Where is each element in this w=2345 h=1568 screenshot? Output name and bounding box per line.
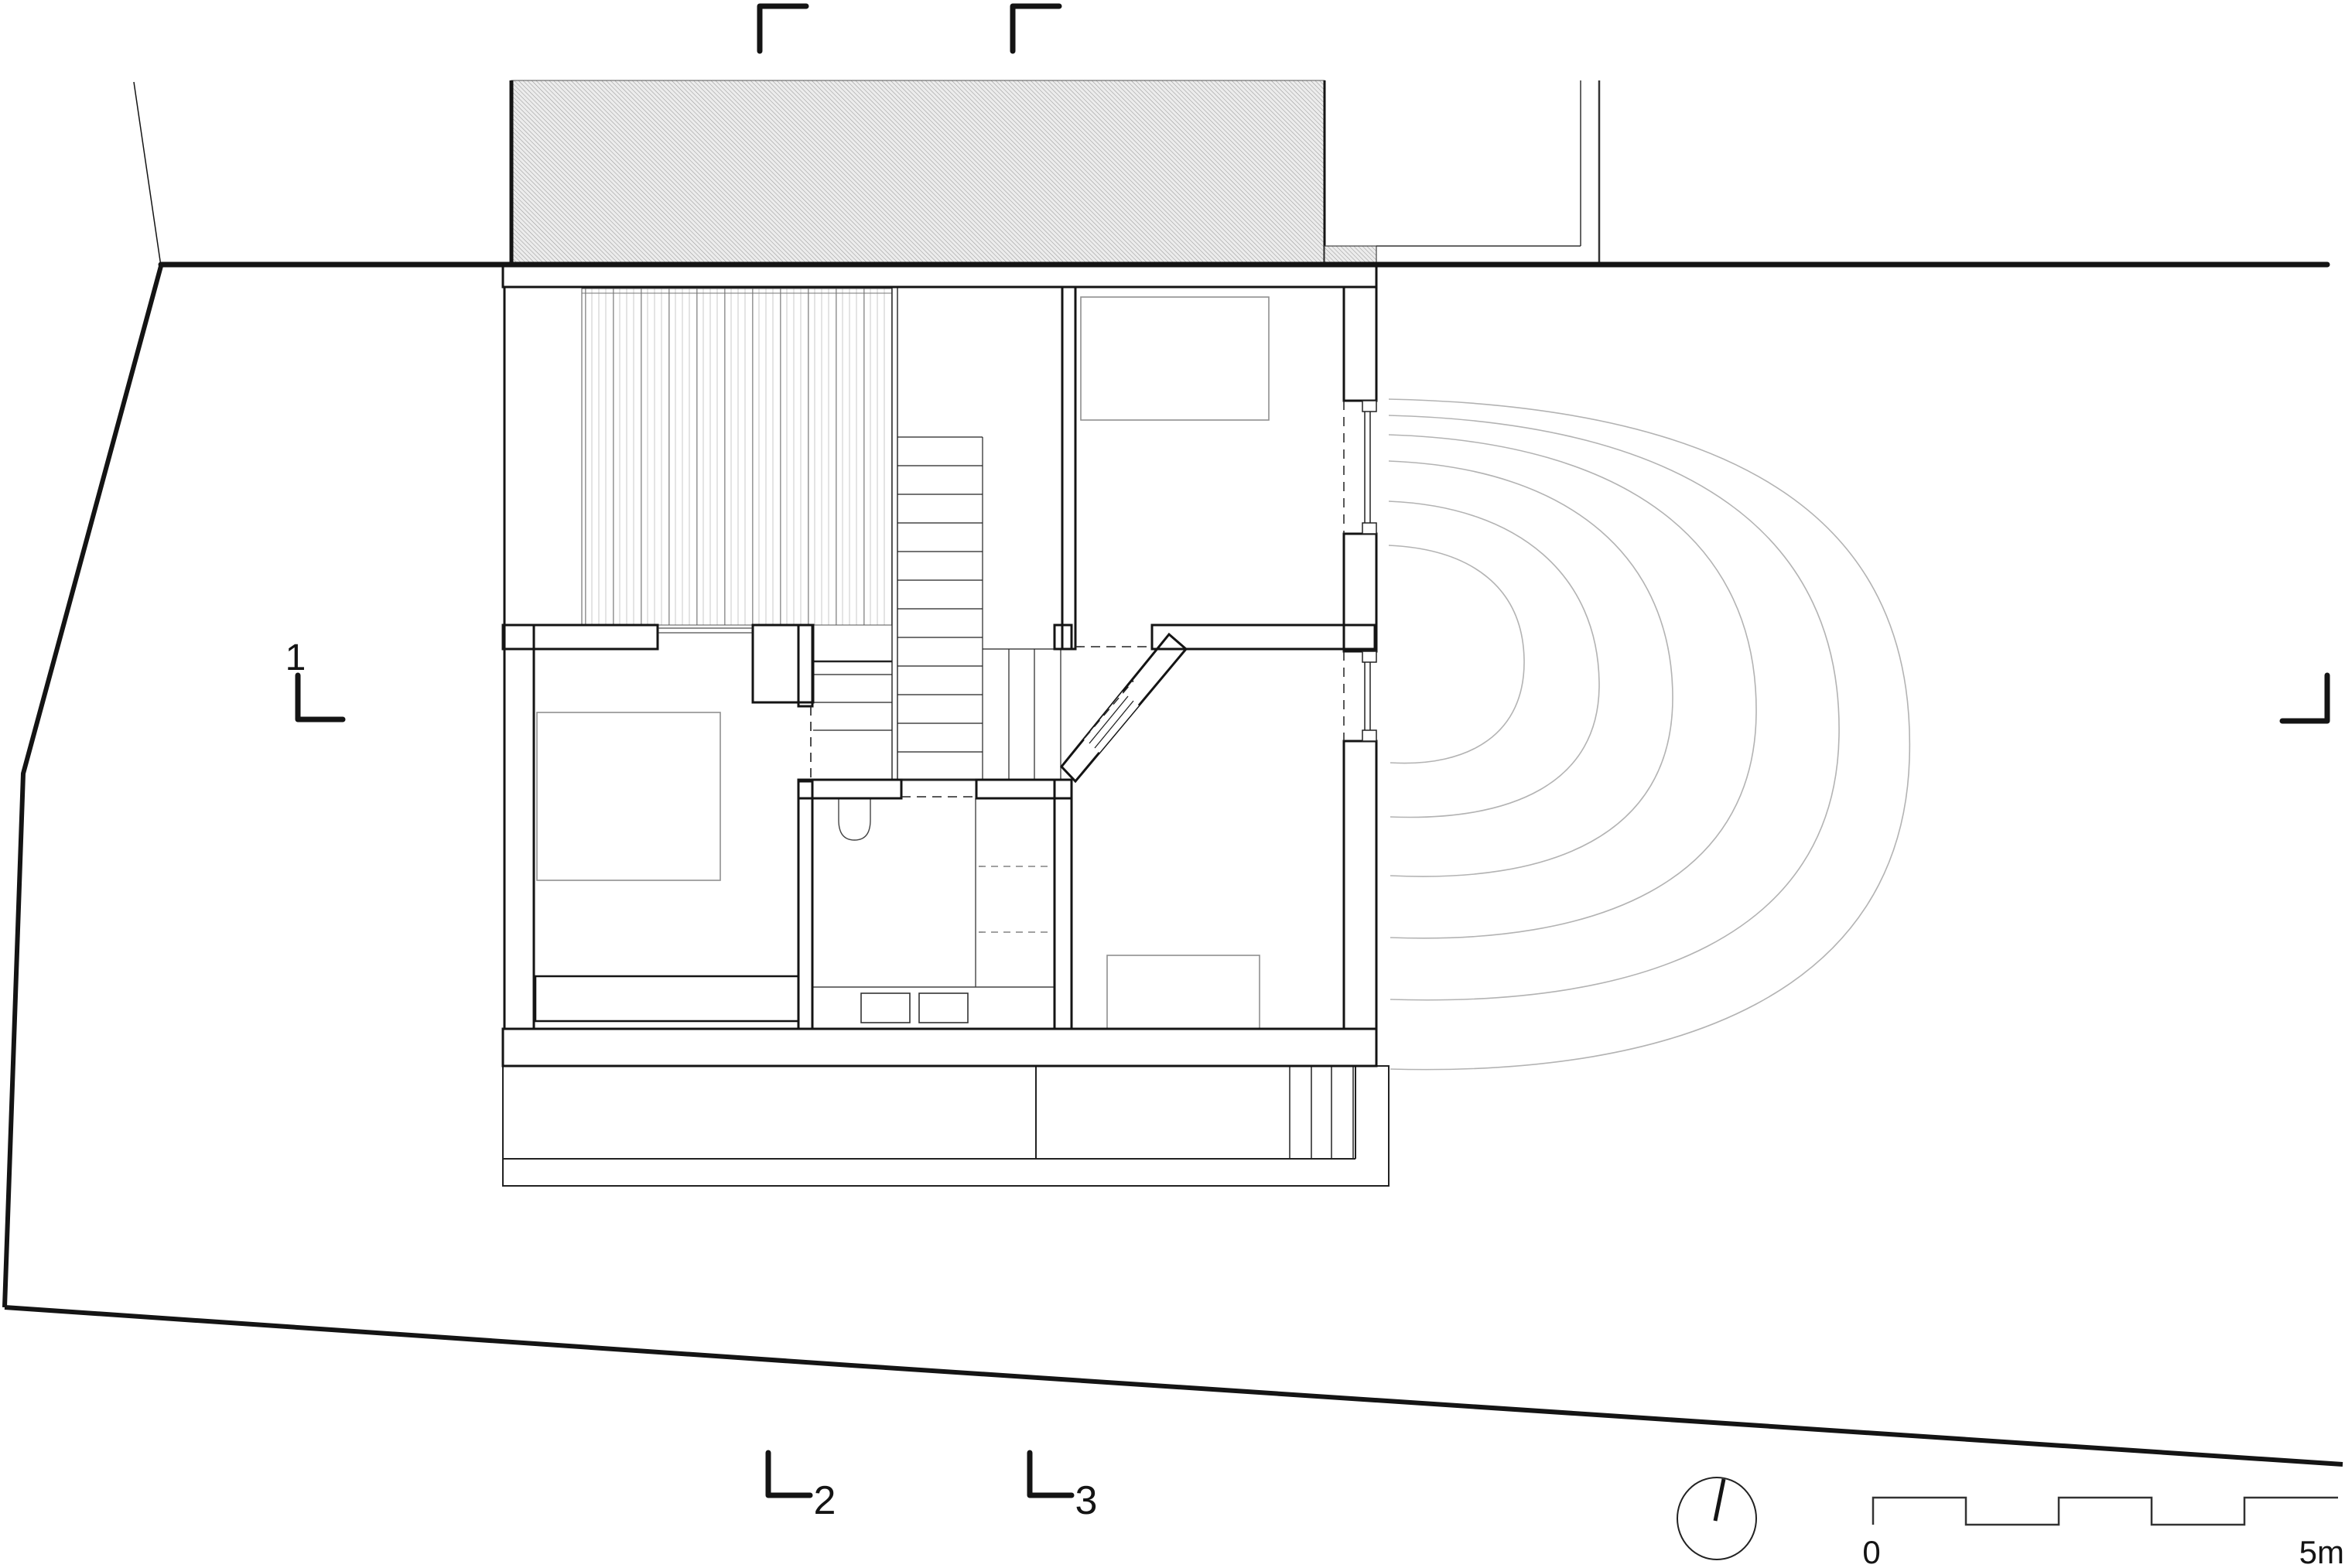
bed-bedroom-left — [537, 712, 720, 880]
boundary-left — [5, 266, 161, 1307]
wall-right-lower — [1344, 741, 1376, 1029]
wall-bedroom-left-right-upper — [798, 625, 812, 706]
door-gap — [1084, 692, 1139, 753]
wall-left-lower — [504, 625, 534, 1029]
wall-top — [503, 266, 1376, 287]
section-cut-marker-icon — [768, 1453, 810, 1495]
north-arrow-icon — [1677, 1477, 1756, 1559]
site-boundary — [5, 82, 2343, 1464]
neighbor-building — [511, 80, 1599, 266]
scale-zero-label: 0 — [1862, 1534, 1880, 1568]
contour-line — [1389, 545, 1524, 764]
section-cut-marker-icon — [1030, 1453, 1072, 1495]
bed-bedroom-bottom-right — [1107, 955, 1260, 1029]
wall-bathroom-top-a — [798, 780, 901, 798]
stair-flight-lower — [983, 649, 1061, 780]
terrace-outline — [503, 1066, 1389, 1186]
wall-right-upper — [1344, 287, 1376, 401]
stair-flight-side — [813, 661, 892, 730]
contour-line — [1389, 415, 1839, 1000]
section-cut-marker-icon — [760, 6, 806, 51]
section-1-label: 1 — [285, 637, 306, 678]
courtyard-walls — [1376, 80, 1599, 266]
scale-bar-icon: 0 5m — [1862, 1498, 2344, 1568]
section-cut-marker-icon — [298, 675, 343, 719]
neighbor-building-footprint — [511, 80, 1325, 266]
terrain-contour-lines — [1389, 399, 1909, 1070]
contour-line — [1389, 399, 1909, 1070]
terrace — [503, 1066, 1389, 1186]
contour-line — [1389, 461, 1673, 876]
floor-plan: 1 2 3 0 5m — [0, 0, 2345, 1568]
scale-end-label: 5m — [2299, 1534, 2344, 1568]
toilet — [839, 798, 870, 840]
wall-hall-vertical — [1055, 780, 1072, 1029]
washbasin — [861, 993, 910, 1023]
boundary-setback-line — [134, 82, 161, 266]
wall-bottom — [503, 1029, 1376, 1066]
stair-flight-upper — [897, 437, 983, 780]
window-bedroom-bottom-right — [1344, 651, 1376, 741]
roof-deck — [582, 287, 897, 780]
boundary-bottom — [5, 1307, 2343, 1464]
closet-strip-bedroom-left — [535, 976, 798, 1021]
window-bedroom-top-right — [1344, 401, 1376, 534]
bathroom-fixtures — [812, 798, 1055, 1023]
section-2-label: 2 — [814, 1478, 836, 1523]
section-cut-marker-icon — [2282, 675, 2327, 721]
wall-middle-a — [503, 625, 658, 649]
bed-bedroom-top-right — [1081, 297, 1269, 420]
section-cut-marker-icon — [1013, 6, 1059, 51]
wall-middle-d — [1152, 625, 1375, 649]
deck-planks — [582, 289, 892, 625]
wall-bedroom1-left — [1062, 287, 1075, 649]
washbasin — [919, 993, 968, 1023]
wall-bedroom-left-right-lower — [798, 781, 812, 1029]
section-3-label: 3 — [1075, 1478, 1098, 1523]
